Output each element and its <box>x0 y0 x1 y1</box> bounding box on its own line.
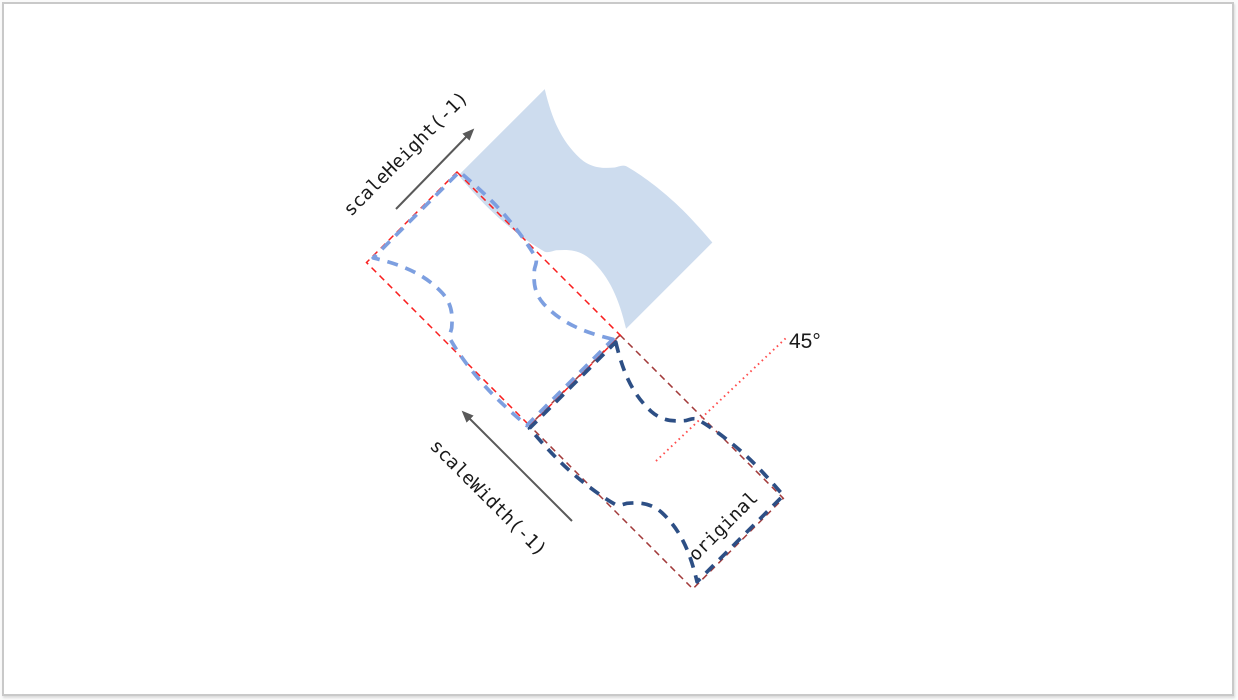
scale-height-label: scaleHeight(-1) <box>340 88 473 221</box>
angle-reference-dotted-line <box>656 338 786 461</box>
transform-diagram: scaleHeight(-1) scaleWidth(-1) original … <box>0 0 1238 700</box>
flag-shape-solid-result <box>457 81 714 338</box>
angle-label: 45° <box>789 330 821 353</box>
scale-width-label: scaleWidth(-1) <box>425 436 550 561</box>
bounding-box-original <box>529 335 783 589</box>
